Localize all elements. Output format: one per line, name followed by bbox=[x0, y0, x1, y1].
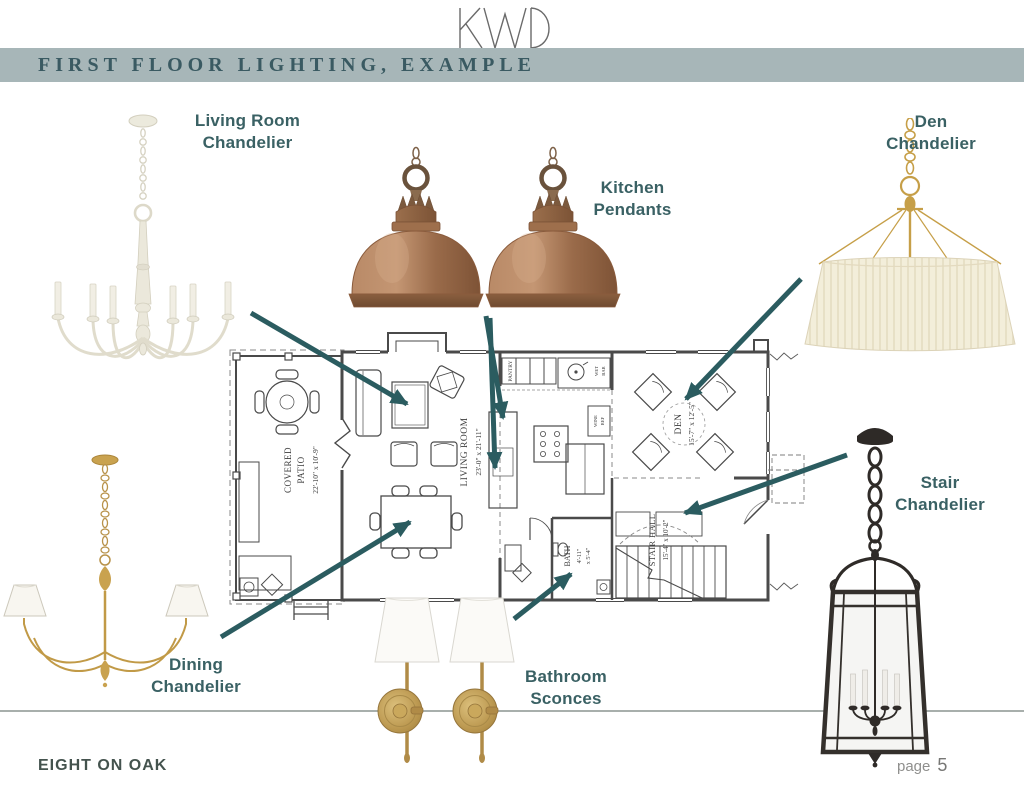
floor-plan: COVERED PATIO 22'-10" x 10'-9" LIVING RO… bbox=[225, 320, 815, 620]
kitchen-pendant-figure-2 bbox=[483, 146, 623, 318]
stem bbox=[135, 221, 151, 304]
ring bbox=[405, 167, 428, 190]
exterior-steps bbox=[294, 600, 328, 620]
label-bath: BATH bbox=[563, 545, 572, 566]
presentation-page: FIRST FLOOR LIGHTING, EXAMPLE bbox=[0, 0, 1024, 790]
ring bbox=[135, 205, 151, 221]
windows-right bbox=[766, 368, 771, 474]
annotation-dining-chandelier: Dining Chandelier bbox=[105, 654, 287, 698]
annotation-living-room-chandelier: Living Room Chandelier bbox=[150, 110, 345, 154]
shade bbox=[805, 258, 1015, 351]
bottom-finial bbox=[868, 753, 882, 764]
page-title: FIRST FLOOR LIGHTING, EXAMPLE bbox=[38, 54, 536, 77]
annotation-stair-chandelier: Stair Chandelier bbox=[855, 472, 1024, 516]
svg-text:BAR: BAR bbox=[601, 365, 606, 375]
project-name: EIGHT ON OAK bbox=[38, 757, 167, 775]
corner-notch bbox=[754, 340, 768, 352]
title-band: FIRST FLOOR LIGHTING, EXAMPLE bbox=[0, 48, 1024, 82]
label-wet-bar: WET bbox=[594, 366, 599, 376]
kitchen-pendant-figure-1 bbox=[346, 146, 486, 318]
svg-text:PATIO: PATIO bbox=[296, 456, 306, 483]
canopy bbox=[92, 455, 118, 465]
page-number: page5 bbox=[897, 755, 947, 776]
label-wine-ref: WINE bbox=[593, 415, 598, 427]
svg-text:15'-4" x 10'-2": 15'-4" x 10'-2" bbox=[662, 519, 670, 560]
label-covered-patio: COVERED bbox=[283, 447, 293, 493]
shade bbox=[375, 598, 439, 662]
finial bbox=[140, 343, 147, 355]
dome bbox=[352, 231, 480, 294]
rim bbox=[349, 294, 483, 307]
annotation-den-chandelier: Den Chandelier bbox=[845, 111, 1017, 155]
ring bbox=[901, 177, 919, 195]
annotation-bathroom-sconces: Bathroom Sconces bbox=[480, 666, 652, 710]
label-den: DEN bbox=[674, 413, 684, 434]
svg-text:22'-10" x 10'-9": 22'-10" x 10'-9" bbox=[311, 446, 320, 494]
key-knob bbox=[411, 707, 423, 714]
svg-text:15'-7" x 12'-5": 15'-7" x 12'-5" bbox=[687, 402, 696, 446]
chain bbox=[101, 465, 109, 554]
leaf-hub bbox=[99, 566, 111, 591]
kwd-logo-letters bbox=[460, 8, 549, 48]
svg-text:4'-11": 4'-11" bbox=[576, 548, 583, 563]
svg-text:x 5'-4": x 5'-4" bbox=[585, 547, 592, 564]
svg-text:REF: REF bbox=[600, 416, 605, 425]
exterior-right bbox=[768, 353, 806, 590]
chain bbox=[140, 129, 146, 199]
annotation-kitchen-pendants: Kitchen Pendants bbox=[545, 177, 720, 221]
svg-text:23'-0" x 21'-11": 23'-0" x 21'-11" bbox=[474, 428, 483, 475]
label-pantry: PANTRY bbox=[508, 360, 514, 381]
label-stair-hall: STAIR HALL bbox=[647, 514, 657, 567]
finial bbox=[404, 753, 410, 763]
label-living-room: LIVING ROOM bbox=[460, 417, 470, 486]
chain bbox=[412, 148, 420, 167]
front-entry bbox=[388, 333, 446, 354]
